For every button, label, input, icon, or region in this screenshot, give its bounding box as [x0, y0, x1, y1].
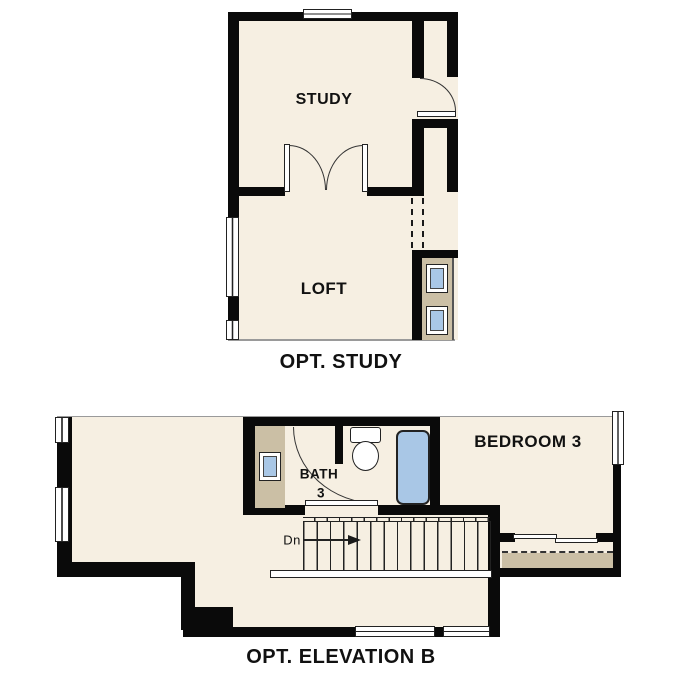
sliding-door-leaf: [513, 534, 557, 539]
stair-direction-line: [303, 539, 349, 541]
study-room-label: STUDY: [296, 91, 353, 109]
stair-treads: [303, 521, 491, 570]
stair-dn-label: Dn: [283, 533, 301, 548]
dashed-opening: [411, 198, 424, 248]
window: [303, 9, 352, 19]
floorplan-sheet: STUDY LOFT OPT. STUDY: [0, 0, 687, 687]
wall: [447, 21, 458, 77]
wall: [412, 258, 422, 340]
wall: [596, 533, 613, 542]
wall: [412, 128, 424, 196]
toilet-bowl: [352, 441, 379, 471]
window: [55, 487, 69, 542]
sink-basin: [430, 310, 444, 331]
stair-bottom-rail: [270, 570, 492, 578]
door-leaf: [417, 111, 456, 117]
window: [55, 417, 69, 443]
vanity-edge: [452, 258, 454, 340]
bath-room-label-line2: 3: [317, 486, 325, 501]
window: [443, 626, 490, 637]
wall: [367, 187, 424, 196]
wall: [57, 562, 195, 577]
door-leaf: [305, 500, 378, 506]
wall: [613, 464, 621, 577]
opt-elevation-b-caption: OPT. ELEVATION B: [246, 646, 436, 669]
opt-study-caption: OPT. STUDY: [280, 351, 403, 374]
sink: [426, 306, 448, 335]
wall: [378, 505, 500, 515]
wall: [430, 417, 440, 510]
sliding-door-leaf: [555, 538, 598, 543]
sink: [426, 264, 448, 293]
wall: [447, 128, 458, 192]
stair-direction-arrow: [348, 535, 361, 545]
window: [612, 411, 624, 465]
sink-basin: [263, 456, 277, 477]
wall: [228, 187, 285, 196]
sink-basin: [430, 268, 444, 289]
bath-room-label-line1: BATH: [300, 467, 339, 482]
bathtub: [396, 430, 430, 505]
wall: [412, 250, 458, 258]
wall: [412, 21, 424, 78]
window: [355, 626, 435, 637]
wall: [243, 417, 255, 515]
closet-interior: [502, 553, 613, 568]
loft-room-label: LOFT: [301, 279, 347, 299]
wall: [500, 568, 621, 577]
window: [226, 320, 239, 340]
window: [226, 217, 239, 297]
bedroom-room-label: BEDROOM 3: [474, 432, 581, 452]
wall: [412, 119, 458, 128]
sink: [259, 452, 281, 481]
